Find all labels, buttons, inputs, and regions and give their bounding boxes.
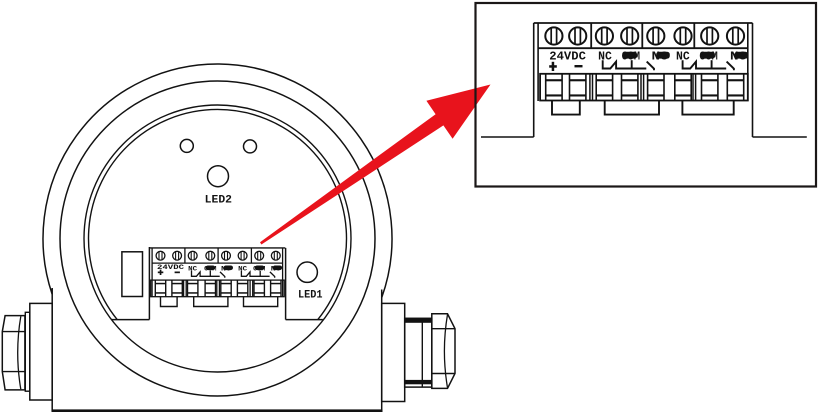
svg-text:NC: NC (598, 50, 612, 64)
svg-text:LED1: LED1 (298, 290, 323, 302)
svg-text:NC: NC (238, 265, 247, 272)
svg-text:LED2: LED2 (205, 194, 232, 206)
svg-text:NC: NC (188, 265, 197, 272)
svg-text:24VDC: 24VDC (549, 50, 586, 64)
